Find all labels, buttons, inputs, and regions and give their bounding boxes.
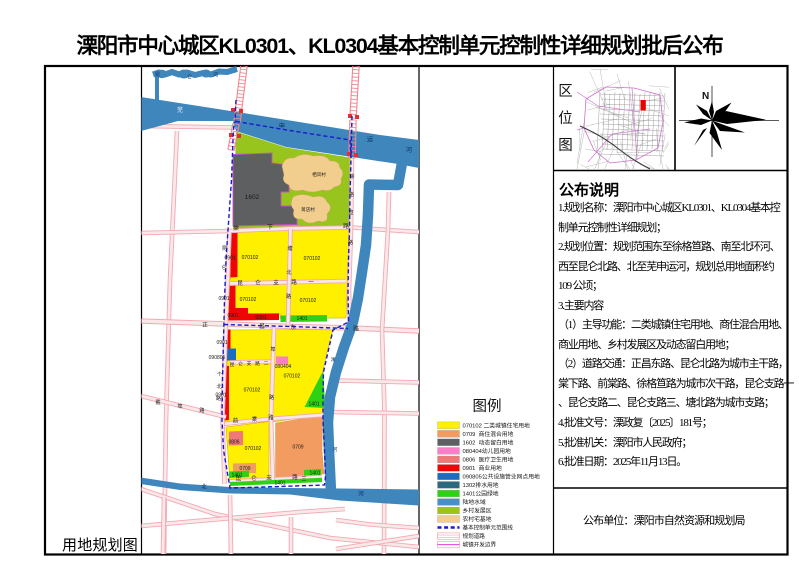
- svg-text:仑: 仑: [251, 474, 257, 482]
- svg-text:N: N: [702, 91, 709, 102]
- svg-text:仑: 仑: [255, 279, 261, 287]
- svg-text:格: 格: [349, 190, 355, 198]
- svg-text:农村宅基地: 农村宅基地: [463, 515, 492, 523]
- svg-text:三: 三: [301, 476, 307, 483]
- svg-text:溧: 溧: [331, 356, 336, 363]
- svg-text:070102: 070102: [242, 255, 259, 261]
- svg-text:路: 路: [255, 360, 260, 367]
- svg-text:070102: 070102: [240, 297, 257, 303]
- svg-text:路: 路: [269, 393, 275, 401]
- svg-text:0806 医疗卫生用地: 0806 医疗卫生用地: [463, 456, 514, 464]
- svg-text:图: 图: [558, 138, 573, 154]
- svg-text:090805公共设施营业网点用地: 090805公共设施营业网点用地: [463, 473, 541, 481]
- svg-text:070102: 070102: [284, 374, 301, 380]
- svg-text:申: 申: [279, 122, 285, 130]
- svg-text:1401: 1401: [296, 316, 307, 322]
- svg-text:0901: 0901: [227, 313, 238, 319]
- svg-text:1602 动态留白用地: 1602 动态留白用地: [463, 438, 514, 446]
- svg-text:河: 河: [406, 146, 412, 154]
- svg-text:仑: 仑: [238, 361, 243, 368]
- svg-text:正: 正: [202, 321, 208, 328]
- svg-text:0901: 0901: [216, 340, 227, 346]
- svg-text:戴: 戴: [155, 398, 160, 406]
- svg-text:蒋店村: 蒋店村: [301, 206, 315, 213]
- svg-text:0901: 0901: [255, 315, 266, 321]
- svg-text:前: 前: [233, 417, 239, 425]
- svg-text:棠: 棠: [252, 415, 258, 423]
- svg-text:运: 运: [367, 136, 373, 144]
- svg-text:河: 河: [333, 446, 338, 452]
- svg-text:昆: 昆: [230, 362, 235, 368]
- svg-text:0901: 0901: [218, 296, 229, 302]
- svg-text:1602: 1602: [245, 194, 260, 201]
- svg-text:河: 河: [213, 72, 218, 79]
- svg-text:下: 下: [267, 224, 273, 231]
- svg-text:路: 路: [199, 406, 205, 414]
- svg-text:笪: 笪: [348, 208, 353, 216]
- svg-text:规划道路: 规划道路: [463, 532, 486, 540]
- svg-text:070102: 070102: [244, 388, 261, 394]
- svg-text:昆: 昆: [222, 245, 227, 252]
- svg-text:埠: 埠: [177, 402, 182, 410]
- svg-text:栖凤村: 栖凤村: [312, 171, 326, 178]
- svg-text:路: 路: [292, 473, 298, 481]
- svg-text:0901 商业用地: 0901 商业用地: [463, 464, 503, 472]
- svg-text:0709 商住混合用地: 0709 商住混合用地: [463, 430, 514, 438]
- svg-text:080404幼儿园用地: 080404幼儿园用地: [463, 447, 512, 455]
- svg-text:0901: 0901: [224, 256, 235, 262]
- svg-text:0709: 0709: [239, 466, 250, 472]
- svg-text:河: 河: [358, 490, 364, 498]
- svg-text:位: 位: [558, 110, 573, 127]
- svg-text:芜: 芜: [177, 106, 183, 114]
- svg-text:070102: 070102: [245, 446, 262, 452]
- svg-text:1302排水用地: 1302排水用地: [463, 481, 499, 489]
- svg-text:070102 二类城镇住宅用地: 070102 二类城镇住宅用地: [463, 421, 531, 429]
- svg-text:二: 二: [264, 361, 269, 367]
- svg-text:070102: 070102: [304, 256, 321, 262]
- svg-text:1401公园绿地: 1401公园绿地: [463, 490, 499, 498]
- svg-text:昌: 昌: [259, 323, 265, 330]
- svg-text:路: 路: [348, 238, 354, 246]
- svg-text:路: 路: [291, 278, 297, 286]
- svg-text:1401: 1401: [308, 402, 319, 408]
- svg-text:棠: 棠: [233, 224, 239, 232]
- svg-text:昆: 昆: [236, 476, 242, 483]
- svg-text:城镇开发边界: 城镇开发边界: [463, 541, 497, 549]
- svg-text:乡村发展区: 乡村发展区: [463, 507, 492, 515]
- svg-text:070102: 070102: [300, 298, 317, 304]
- svg-text:北: 北: [216, 382, 222, 390]
- svg-text:基本控制单元范围线: 基本控制单元范围线: [463, 524, 514, 532]
- svg-text:区: 区: [558, 84, 573, 100]
- svg-text:仑: 仑: [221, 263, 227, 271]
- svg-text:图例: 图例: [473, 398, 502, 415]
- svg-text:支: 支: [247, 360, 252, 367]
- svg-text:080404: 080404: [275, 364, 292, 370]
- svg-text:支: 支: [266, 474, 272, 482]
- svg-text:0806: 0806: [228, 440, 239, 446]
- svg-text:徐: 徐: [349, 172, 354, 180]
- svg-text:东: 东: [290, 323, 296, 331]
- svg-text:北: 北: [201, 483, 207, 491]
- svg-text:1401: 1401: [309, 471, 320, 477]
- svg-text:北: 北: [286, 268, 292, 276]
- svg-text:陆地水域: 陆地水域: [463, 498, 486, 506]
- svg-text:支: 支: [273, 278, 279, 286]
- svg-text:路: 路: [353, 324, 359, 332]
- svg-text:路: 路: [268, 414, 274, 422]
- svg-text:090805: 090805: [209, 355, 226, 361]
- svg-text:一: 一: [308, 280, 314, 286]
- svg-text:个: 个: [217, 371, 223, 378]
- svg-text:路: 路: [286, 292, 292, 300]
- svg-text:昆: 昆: [155, 72, 160, 78]
- svg-text:塘: 塘: [287, 244, 292, 252]
- svg-text:仑: 仑: [187, 74, 192, 81]
- svg-text:路: 路: [343, 222, 349, 230]
- svg-text:埠: 埠: [270, 345, 275, 353]
- svg-text:0709: 0709: [292, 445, 303, 451]
- svg-text:1401: 1401: [274, 480, 285, 486]
- svg-text:昆: 昆: [237, 280, 243, 287]
- svg-text:路: 路: [216, 394, 222, 402]
